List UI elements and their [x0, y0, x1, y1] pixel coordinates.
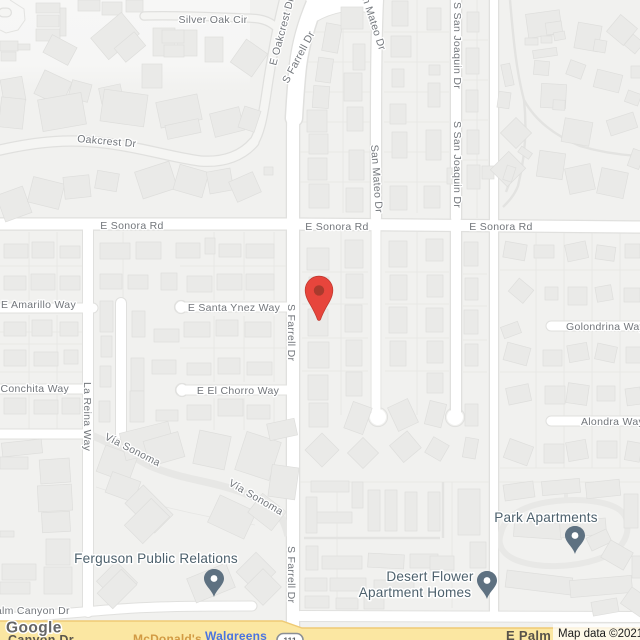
svg-text:E El Chorro Way: E El Chorro Way: [197, 385, 280, 397]
svg-text:Ferguson Public Relations: Ferguson Public Relations: [74, 551, 238, 566]
svg-text:S San Joaquin Dr: S San Joaquin Dr: [451, 2, 463, 89]
svg-text:Silver Oak Cir: Silver Oak Cir: [179, 14, 248, 26]
svg-text:E Sonora Rd: E Sonora Rd: [469, 221, 532, 233]
svg-text:111: 111: [283, 636, 297, 640]
svg-text:McDonald's: McDonald's: [133, 632, 202, 640]
svg-text:S San Joaquin Dr: S San Joaquin Dr: [451, 121, 463, 208]
svg-text:Alondra Way: Alondra Way: [581, 416, 640, 428]
svg-text:E Sonora Rd: E Sonora Rd: [305, 221, 368, 233]
svg-text:Desert Flower: Desert Flower: [386, 569, 473, 584]
svg-text:E Santa Ynez Way: E Santa Ynez Way: [188, 302, 281, 314]
svg-text:E Sonora Rd: E Sonora Rd: [100, 220, 163, 232]
svg-text:La Reina Way: La Reina Way: [81, 382, 93, 452]
svg-text:E Amarillo Way: E Amarillo Way: [1, 299, 76, 311]
svg-text:E Palm Canyon Dr: E Palm Canyon Dr: [0, 605, 70, 617]
svg-text:Golondrina Way: Golondrina Way: [566, 321, 640, 333]
svg-text:Walgreens: Walgreens: [205, 629, 267, 640]
svg-text:S Farrell Dr: S Farrell Dr: [285, 546, 297, 603]
svg-text:Google: Google: [6, 620, 62, 637]
svg-text:Park Apartments: Park Apartments: [494, 510, 598, 525]
svg-text:S Farrell Dr: S Farrell Dr: [285, 304, 297, 361]
svg-text:E Palm: E Palm: [506, 628, 551, 640]
svg-text:Apartment Homes: Apartment Homes: [359, 585, 472, 600]
svg-text:E Conchita Way: E Conchita Way: [0, 383, 70, 395]
